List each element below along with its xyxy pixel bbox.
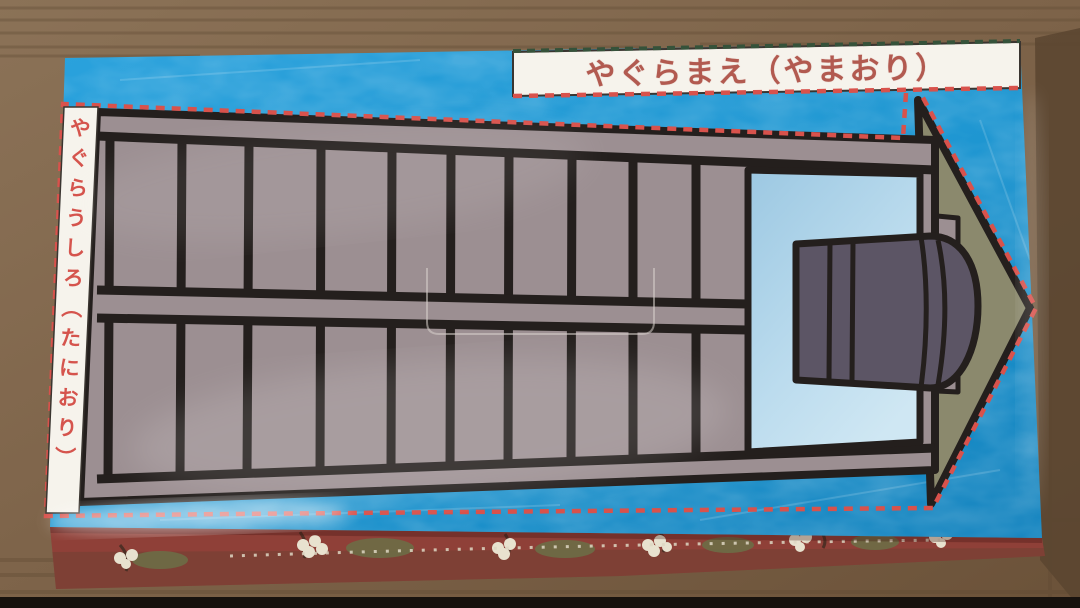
table-edge-dark-strip — [0, 597, 1080, 608]
taiko-drum — [796, 236, 978, 388]
drum-body — [796, 236, 978, 388]
photo-canvas — [0, 0, 1080, 608]
fold-banner — [513, 41, 1020, 96]
photo-of-papercraft-box: やぐらまえ（やまおり） やぐらうしろ（たにおり） — [0, 0, 1080, 608]
